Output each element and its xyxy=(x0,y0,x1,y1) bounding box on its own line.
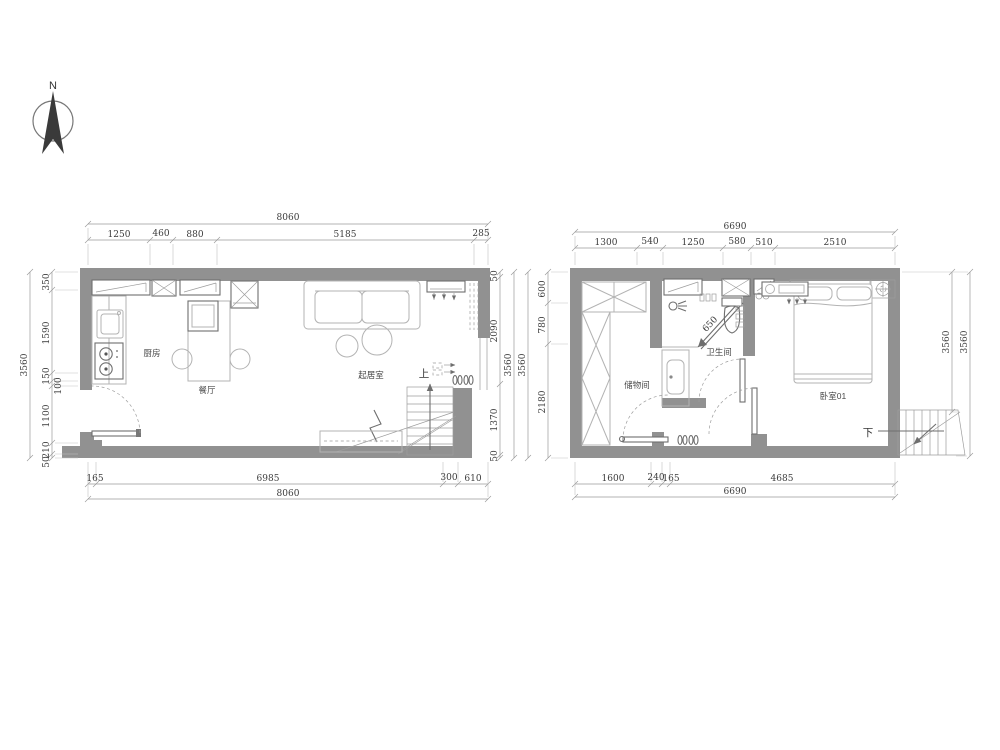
svg-text:165: 165 xyxy=(86,474,103,484)
left-plan-windows xyxy=(92,280,258,308)
svg-text:3560: 3560 xyxy=(960,330,970,353)
svg-text:3560: 3560 xyxy=(20,353,30,376)
bedroom-label: 卧室01 xyxy=(820,391,847,401)
svg-text:880: 880 xyxy=(186,230,203,240)
svg-text:3560: 3560 xyxy=(942,330,952,353)
svg-text:3560: 3560 xyxy=(504,353,514,376)
svg-text:460: 460 xyxy=(152,229,169,239)
svg-text:1370: 1370 xyxy=(490,408,500,431)
svg-text:510: 510 xyxy=(755,238,772,248)
radiator-icon xyxy=(470,283,478,330)
bedroom-door-icon xyxy=(709,388,757,434)
window-icon xyxy=(664,279,702,295)
shaft-icon xyxy=(231,281,258,308)
svg-text:50: 50 xyxy=(42,456,52,468)
sink-icon xyxy=(97,310,123,338)
living-label: 起居室 xyxy=(358,370,384,380)
svg-text:300: 300 xyxy=(440,473,457,483)
svg-text:2090: 2090 xyxy=(490,319,500,342)
kitchen-label: 厨房 xyxy=(143,348,160,358)
svg-text:50: 50 xyxy=(490,270,500,282)
floor-plan-page: N xyxy=(0,0,1000,750)
dining-label: 餐厅 xyxy=(198,385,216,395)
wardrobe-icon xyxy=(582,282,646,445)
svg-text:100: 100 xyxy=(54,377,64,394)
svg-text:6690: 6690 xyxy=(724,222,747,232)
svg-text:350: 350 xyxy=(42,273,52,290)
kitchen-counter xyxy=(92,296,126,384)
bed-icon xyxy=(794,284,872,383)
window-icon xyxy=(92,280,150,295)
svg-text:6985: 6985 xyxy=(257,474,280,484)
svg-text:540: 540 xyxy=(641,237,658,247)
svg-text:1250: 1250 xyxy=(682,238,705,248)
vanity-sink-icon xyxy=(662,350,689,406)
svg-text:8060: 8060 xyxy=(277,213,300,223)
bathroom-label: 卫生间 xyxy=(706,347,732,357)
svg-text:4685: 4685 xyxy=(771,474,794,484)
svg-text:600: 600 xyxy=(538,280,548,297)
svg-text:2180: 2180 xyxy=(538,390,548,413)
svg-text:610: 610 xyxy=(464,474,481,484)
svg-text:1100: 1100 xyxy=(42,404,52,427)
svg-text:285: 285 xyxy=(472,229,489,239)
north-arrow-icon: N xyxy=(33,80,73,154)
svg-text:210: 210 xyxy=(42,441,52,458)
shoes-icon xyxy=(433,363,473,385)
svg-text:2510: 2510 xyxy=(824,238,847,248)
shaft-column-icon xyxy=(722,279,750,296)
floor-plan-drawing: N xyxy=(0,0,1000,750)
chair-icon xyxy=(230,349,250,369)
north-label: N xyxy=(49,80,57,92)
dining-set xyxy=(172,301,250,381)
coffee-table-icon xyxy=(336,335,358,357)
shoes-icon xyxy=(678,436,698,445)
tv-icon xyxy=(427,281,465,300)
svg-text:3560: 3560 xyxy=(518,353,528,376)
svg-text:1590: 1590 xyxy=(42,321,52,344)
stair-up xyxy=(336,384,456,455)
svg-text:1600: 1600 xyxy=(602,474,625,484)
svg-text:50: 50 xyxy=(490,450,500,462)
stair-down-label: 下 xyxy=(863,427,874,439)
svg-text:1250: 1250 xyxy=(108,230,131,240)
svg-text:580: 580 xyxy=(728,237,745,247)
svg-text:6690: 6690 xyxy=(724,487,747,497)
svg-text:1300: 1300 xyxy=(595,238,618,248)
shaft-column-icon xyxy=(152,280,176,296)
entry-door-icon xyxy=(92,386,141,437)
stair-up-label: 上 xyxy=(419,368,430,380)
window-icon xyxy=(180,280,220,295)
svg-text:150: 150 xyxy=(42,367,52,384)
chair-icon xyxy=(172,349,192,369)
storage-label: 储物间 xyxy=(624,380,650,390)
svg-text:780: 780 xyxy=(538,316,548,333)
svg-text:165: 165 xyxy=(662,474,679,484)
svg-text:8060: 8060 xyxy=(277,489,300,499)
svg-text:5185: 5185 xyxy=(334,230,357,240)
bathroom-door-icon xyxy=(699,359,745,402)
sofa-icon xyxy=(304,281,420,329)
